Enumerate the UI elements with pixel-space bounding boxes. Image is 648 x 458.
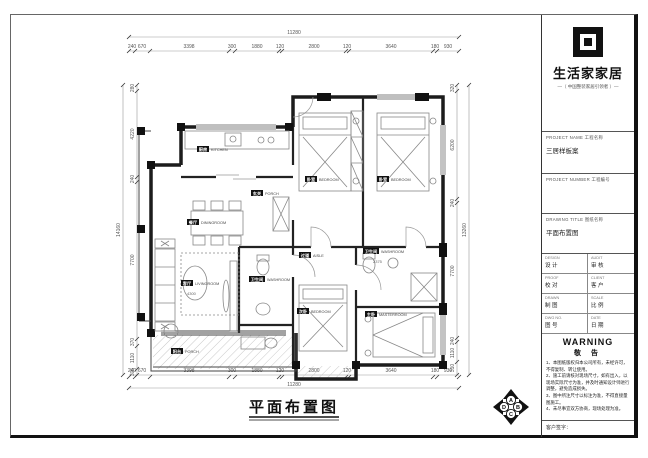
brand-logo-icon [573,27,603,57]
elevation-compass-icon: A B C D [493,389,529,425]
room-label-aisle: 过道 AISLE [299,252,324,259]
grid-cell-date: DATE日 期 [588,314,634,334]
room-name-en: PORCH [265,192,279,196]
room-label-kitchen: 厨房 KITCHEN [197,146,228,153]
compass-letter-d: D [502,405,506,411]
grid-cell-design: DESIGN设 计 [542,254,588,274]
warning-section: WARNING 敬 告 1、本图纸版权归本公司所有，未经许可，不得复制、转让使用… [542,334,634,420]
warning-note: 3、图中所注尺寸以标注为准，不得直接量图施工。 [546,393,630,406]
dimension-top: 11280 240 670 3398 300 1880 120 2800 120… [128,30,453,50]
brand-name: 生活家家居 [542,63,634,82]
cell-en: CLIENT [591,276,631,280]
room-name-en: MASTERROOM [379,313,407,317]
room-label-balcony: 阳台 PORCH [171,348,199,355]
dim-label: 14160 [116,223,122,237]
field-label: DRAWING TITLE 图纸名称 [546,217,630,223]
dim-label: 120 [276,44,285,50]
dim-label: 240 [450,337,456,346]
room-name-en: PORCH [185,350,199,354]
cell-en: AUDIT [591,256,631,260]
compass-letter-b: B [516,405,520,411]
dim-label: 670 [138,44,147,50]
room-name-cn: 厨房 [199,146,207,153]
dim-label: 11280 [287,382,301,388]
warning-note: 4、未尽事宜双方协商，现场处理为准。 [546,406,630,413]
field-label: PROJECT NUMBER 工程编号 [546,177,630,183]
cell-cn: 校 对 [545,281,584,289]
dim-label: 240 [450,199,456,208]
room-name-en: BEDROOM [319,178,339,182]
room-name-en: WASHROOM [381,250,404,254]
dim-label: 4220 [130,128,136,139]
dim-label: 3398 [183,44,194,50]
room-label-bedroom1: 卧室 BEDROOM [305,176,339,183]
cell-cn: 比 例 [591,301,631,309]
dim-label: 2800 [308,44,319,50]
room-name-en: WASHROOM [267,278,290,282]
room-label-entry: 玄关 PORCH [251,190,279,197]
floorplan-screenshot: 11280 240 670 3398 300 1880 120 2800 120… [0,0,648,458]
dim-label: 320 [450,84,456,93]
room-name-cn: 阳台 [173,348,181,355]
dim-label: 13260 [462,223,468,237]
grid-cell-audit: AUDIT审 核 [588,254,634,274]
dim-label: 6200 [450,139,456,150]
room-name-cn: 客厅 [182,280,192,287]
warning-note: 1、本图纸版权归本公司所有，未经许可，不得复制、转让使用。 [546,360,630,373]
plan-walls-interior [181,97,443,365]
dim-label: 305 [130,368,136,377]
dim-label: 180 [431,44,440,50]
room-name-cn: 餐厅 [188,219,198,226]
cell-en: SCALE [591,296,631,300]
room-name-en: LIVINGROOM [195,282,219,286]
room-size: 2375 [373,259,383,264]
brand-header: 生活家家居 —（ 中国整装家居引领者 ）— [542,27,634,131]
dim-label: 3640 [385,44,396,50]
room-label-bedroom3: 次卧 BEDROOM [297,308,331,315]
cell-cn: 客 户 [591,281,631,289]
cell-en: PROOF [545,276,584,280]
room-label-master: 主卧 MASTERROOM [365,311,407,318]
dim-label: 1110 [450,348,456,359]
cell-cn: 制 图 [545,301,584,309]
field-project-name: PROJECT NAME 工程名称 三居样板案 [542,131,634,173]
dim-label: 7700 [450,265,456,276]
cell-en: DESIGN [545,256,584,260]
room-name-en: BEDROOM [311,310,331,314]
cell-en: DRAWN [545,296,584,300]
room-name-cn: 卧室 [379,176,388,183]
cell-cn: 日 期 [591,321,631,329]
dimension-right: 13260 320 6200 240 7700 240 1110 310 [450,84,468,373]
room-name-en: KITCHEN [211,148,228,152]
field-project-number: PROJECT NUMBER 工程编号 [542,173,634,213]
signoff-grid: DESIGN设 计 AUDIT审 核 PROOF校 对 CLIENT客 户 DR… [542,253,634,334]
drawing-sheet: 11280 240 670 3398 300 1880 120 2800 120… [10,14,638,438]
warning-title-cn: 敬 告 [546,348,630,358]
dim-label: 1110 [130,353,136,364]
warning-title-en: WARNING [546,337,630,347]
drawing-title: 平面布置图 [249,398,339,420]
room-name-en: AISLE [313,254,324,258]
brand-slogan: —（ 中国整装家居引领者 ）— [542,84,634,90]
dim-label: 180 [431,368,440,374]
floorplan-svg: 11280 240 670 3398 300 1880 120 2800 120… [11,15,541,437]
field-value: 三居样板案 [546,145,630,155]
dim-label: 240 [128,44,137,50]
drawing-title-text: 平面布置图 [249,398,339,416]
warning-note: 2、施工前请核对现场尺寸，如有出入，以现场实际尺寸为准，并及时通知设计师进行调整… [546,373,630,393]
cell-en: DATE [591,316,631,320]
room-label-living: 客厅 LIVINGROOM 4300 [181,280,219,296]
room-name-cn: 卫生间 [251,276,264,283]
room-name-cn: 卫生间 [365,248,378,255]
dim-label: 300 [228,44,237,50]
dim-label: 240 [130,175,136,184]
dim-label: 120 [343,44,352,50]
dim-label: 310 [450,364,456,373]
dimension-left: 14160 280 4220 240 7700 370 1110 305 [116,84,136,377]
dim-label: 670 [138,368,147,374]
room-name-cn: 卧室 [307,176,316,183]
room-label-bedroom2: 卧室 BEDROOM [377,176,411,183]
windows [196,93,447,355]
dim-label: 1880 [251,44,262,50]
room-label-dining: 餐厅 DININGROOM [187,219,226,226]
client-signature-field: 客户签字： [542,420,634,437]
dim-label: 11280 [287,30,301,36]
room-name-cn: 玄关 [253,190,262,197]
room-size: 4300 [187,291,197,296]
title-block: 生活家家居 —（ 中国整装家居引领者 ）— PROJECT NAME 工程名称 … [541,15,634,437]
room-name-en: DININGROOM [201,221,226,225]
compass-letter-c: C [509,412,513,418]
grid-cell-client: CLIENT客 户 [588,274,634,294]
room-name-cn: 次卧 [299,308,308,315]
cell-cn: 图 号 [545,321,584,329]
field-value: 平面布置图 [546,227,630,237]
cell-en: DWG NO. [545,316,584,320]
field-drawing-title: DRAWING TITLE 图纸名称 平面布置图 [542,213,634,253]
dim-label: 3640 [385,368,396,374]
grid-cell-number: DWG NO.图 号 [542,314,588,334]
cell-cn: 审 核 [591,261,631,269]
room-label-wc: 卫生间 WASHROOM [249,276,290,283]
grid-cell-drawn: DRAWN制 图 [542,294,588,314]
dim-label: 280 [130,84,136,93]
cell-cn: 设 计 [545,261,584,269]
compass-letter-a: A [509,398,513,404]
dim-label: 930 [444,44,453,50]
dim-label: 7700 [130,254,136,265]
grid-cell-scale: SCALE比 例 [588,294,634,314]
room-name-en: BEDROOM [391,178,411,182]
room-name-cn: 过道 [301,252,310,259]
room-name-cn: 主卧 [367,311,376,318]
field-label: PROJECT NAME 工程名称 [546,135,630,141]
grid-cell-proof: PROOF校 对 [542,274,588,294]
balcony-railings [139,131,296,371]
dim-label: 370 [130,338,136,347]
